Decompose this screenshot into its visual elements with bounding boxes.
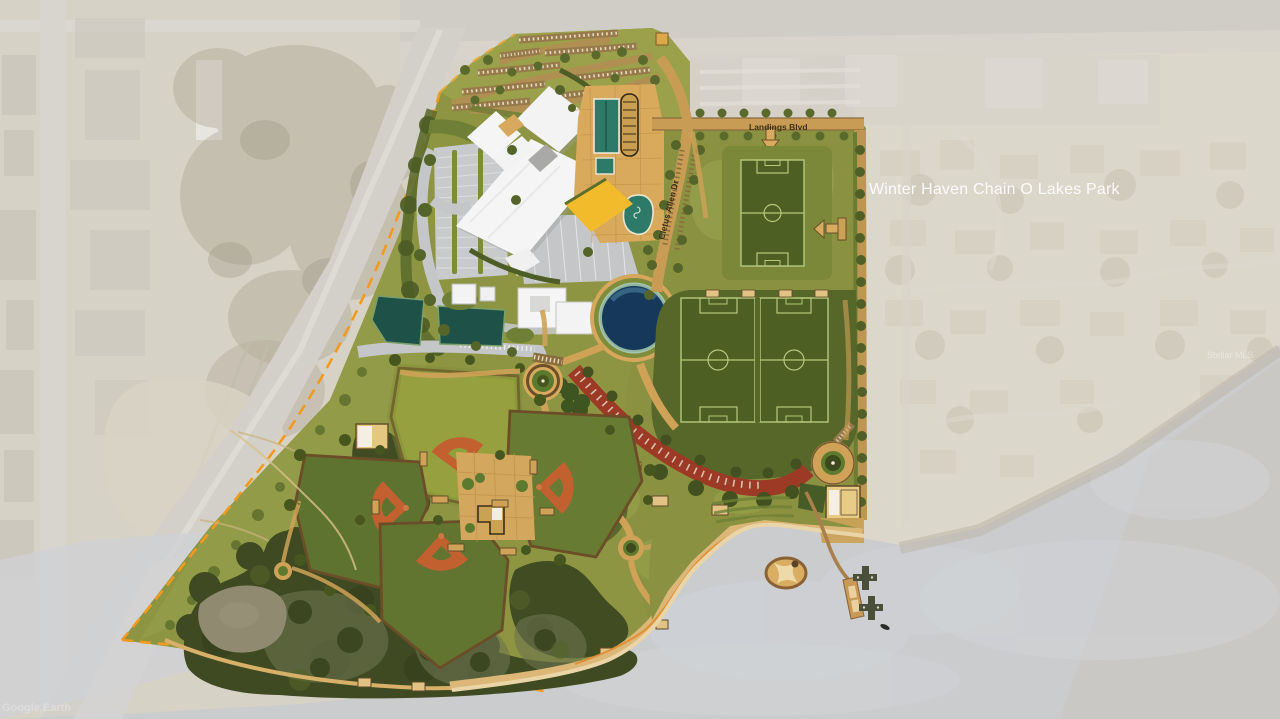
svg-text:Landings Blvd: Landings Blvd <box>749 122 808 132</box>
